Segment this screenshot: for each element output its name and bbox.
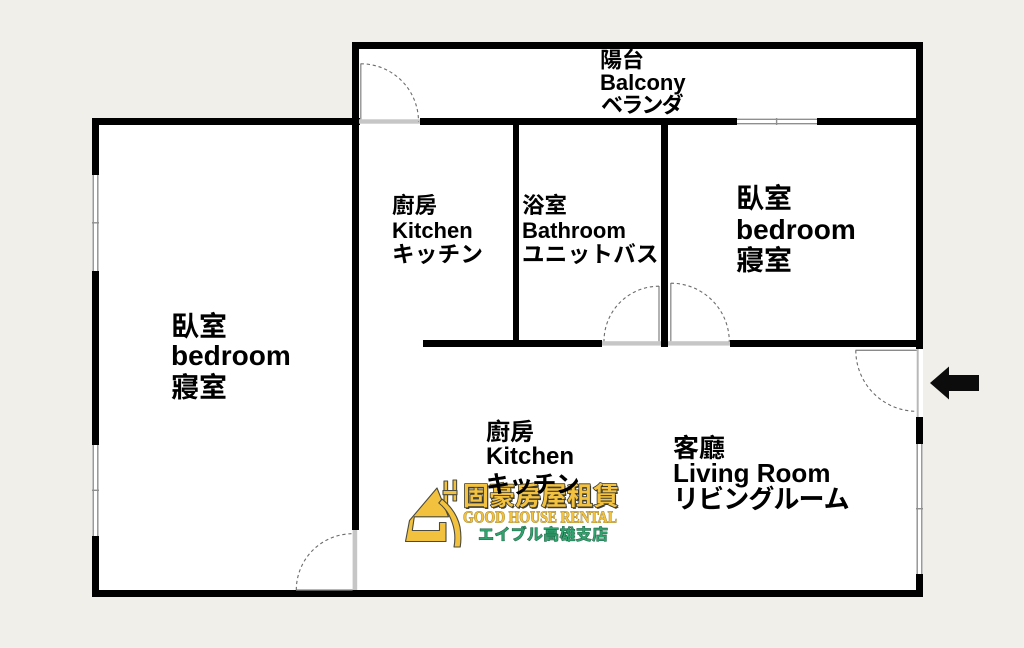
svg-text:GOOD HOUSE RENTAL: GOOD HOUSE RENTAL	[463, 508, 617, 527]
svg-text:Balcony: Balcony	[600, 70, 686, 95]
svg-text:Kitchen: Kitchen	[486, 443, 574, 470]
svg-text:bedroom: bedroom	[171, 340, 291, 371]
svg-text:Bathroom: Bathroom	[522, 218, 626, 243]
svg-text:bedroom: bedroom	[736, 214, 856, 245]
svg-text:Living Room: Living Room	[673, 458, 830, 488]
svg-text:Kitchen: Kitchen	[392, 218, 473, 243]
